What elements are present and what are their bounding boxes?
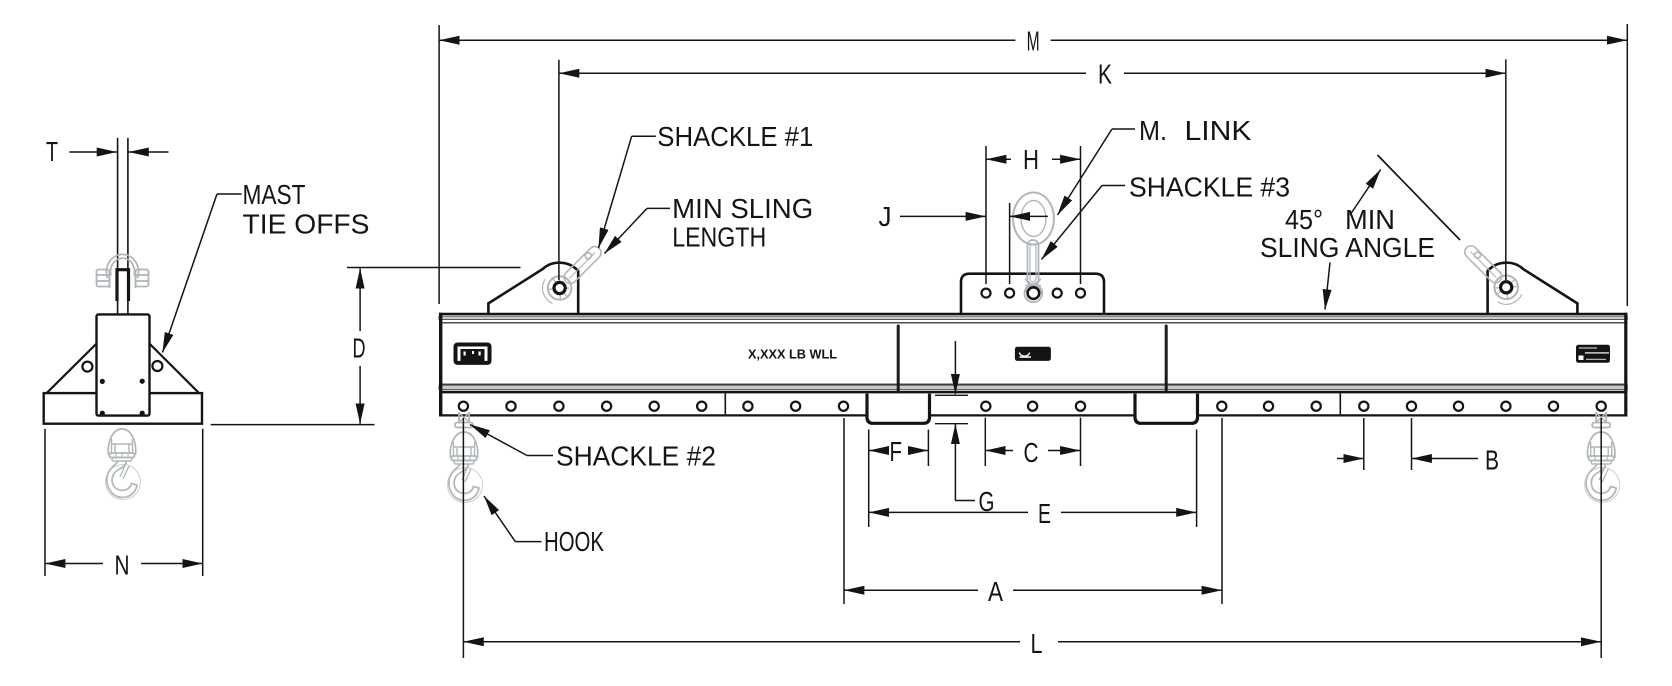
svg-text:SHACKLE #1: SHACKLE #1 xyxy=(657,121,813,152)
svg-text:D: D xyxy=(353,333,366,364)
svg-text:MAST: MAST xyxy=(243,179,306,210)
svg-text:45°: 45° xyxy=(1285,204,1323,235)
svg-text:H: H xyxy=(1023,144,1039,175)
svg-text:B: B xyxy=(1485,445,1499,476)
svg-text:MIN SLING: MIN SLING xyxy=(672,193,813,224)
svg-text:TIE OFFS: TIE OFFS xyxy=(243,208,370,239)
svg-text:LENGTH: LENGTH xyxy=(672,222,766,253)
svg-text:A: A xyxy=(988,576,1004,607)
svg-text:N: N xyxy=(115,549,130,580)
svg-text:SHACKLE #2: SHACKLE #2 xyxy=(556,441,716,472)
svg-text:C: C xyxy=(1024,437,1039,468)
svg-text:X,XXX LB WLL: X,XXX LB WLL xyxy=(748,347,837,362)
svg-text:LINK: LINK xyxy=(1185,115,1253,146)
svg-text:M.: M. xyxy=(1139,115,1167,146)
svg-text:T: T xyxy=(46,136,58,167)
svg-text:G: G xyxy=(979,486,995,517)
svg-text:M: M xyxy=(1027,25,1040,56)
svg-text:J: J xyxy=(879,201,892,232)
svg-text:K: K xyxy=(1098,59,1113,90)
svg-text:E: E xyxy=(1038,498,1051,529)
svg-text:SLING ANGLE: SLING ANGLE xyxy=(1260,232,1435,263)
svg-text:SHACKLE #3: SHACKLE #3 xyxy=(1129,172,1290,203)
svg-text:L: L xyxy=(1031,628,1043,659)
svg-text:F: F xyxy=(890,436,903,467)
svg-text:MIN: MIN xyxy=(1345,204,1395,235)
svg-text:HOOK: HOOK xyxy=(544,526,604,557)
